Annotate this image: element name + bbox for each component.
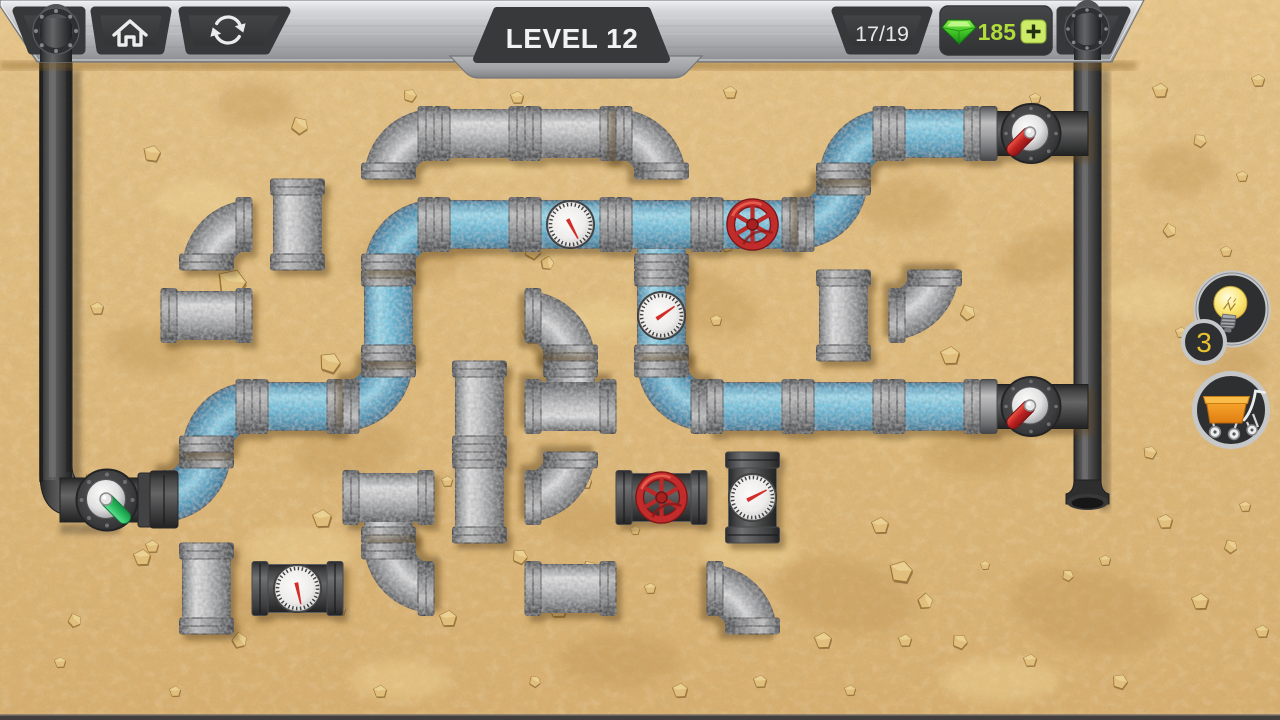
svg-text:185: 185	[978, 19, 1017, 45]
svg-text:3: 3	[1196, 327, 1212, 358]
svg-text:LEVEL 12: LEVEL 12	[506, 23, 639, 54]
svg-text:17/19: 17/19	[855, 22, 909, 46]
